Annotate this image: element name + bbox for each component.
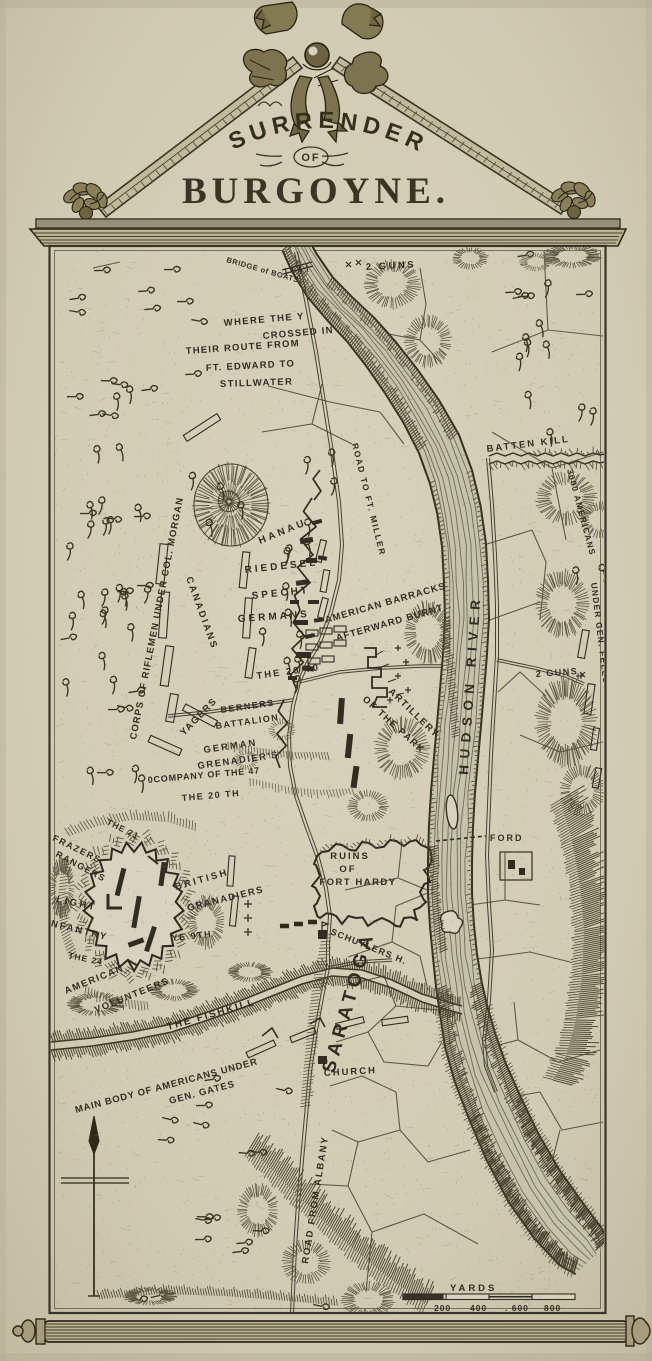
svg-text:OF: OF (339, 864, 356, 875)
svg-text:800: 800 (544, 1303, 561, 1313)
svg-text:FORD: FORD (490, 833, 524, 843)
svg-text:RUINS: RUINS (330, 851, 370, 862)
svg-text:YARDS: YARDS (450, 1283, 497, 1294)
svg-text:BURGOYNE.: BURGOYNE. (182, 171, 450, 212)
svg-text:200: 200 (434, 1303, 451, 1313)
svg-text:. 600: . 600 (505, 1303, 529, 1313)
svg-text:OF: OF (301, 152, 320, 164)
svg-text:400: 400 (470, 1303, 487, 1313)
